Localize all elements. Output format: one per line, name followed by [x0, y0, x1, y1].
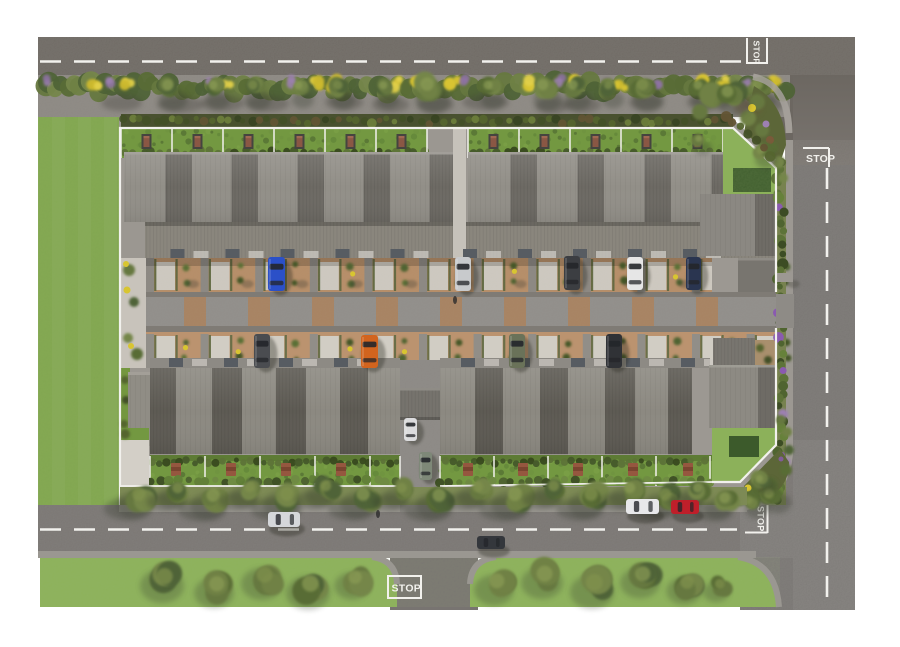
svg-text:STOP: STOP: [392, 583, 422, 595]
svg-text:STOP: STOP: [806, 153, 835, 165]
svg-text:STOP: STOP: [752, 41, 762, 65]
